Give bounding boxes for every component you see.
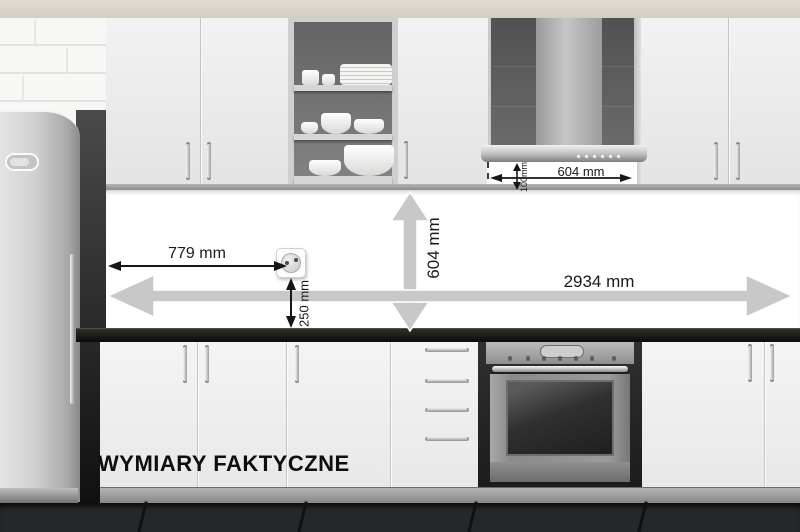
oven-lower-drawer (490, 462, 630, 482)
bowl (309, 160, 341, 176)
total-width-label: 2934 mm (544, 272, 654, 292)
open-shelf-cabinet (288, 18, 398, 184)
large-bowl (344, 145, 394, 176)
cabinet-handle (207, 144, 211, 178)
upper-cabinets (106, 18, 800, 190)
oven-door-handle (492, 366, 628, 372)
floor-grout-line (635, 501, 648, 532)
plate-stack (340, 64, 392, 85)
fridge-display (5, 153, 39, 171)
drawer-handle (427, 408, 467, 412)
floor (0, 503, 800, 532)
floor-grout-line (135, 501, 148, 532)
splashback-height-label: 604 mm (424, 213, 444, 283)
cabinet-handle (748, 346, 752, 380)
kitchen-dimensions-diagram: 779 mm 250 mm 604 mm 2934 mm 604 mm 100m… (0, 0, 800, 532)
oven (486, 342, 634, 482)
shelf (294, 134, 392, 140)
fridge-kick-plate (0, 488, 78, 504)
cabinet-jamb (488, 18, 491, 166)
hood-chimney (536, 18, 602, 150)
oven-knob (542, 356, 546, 361)
bowl (354, 119, 384, 134)
plinth (100, 487, 800, 503)
cabinet-door-seam (390, 342, 391, 487)
outlet-socket (281, 253, 301, 273)
shelf (294, 176, 392, 184)
socket-offset-label: 779 mm (152, 245, 242, 263)
oven-door (490, 374, 630, 462)
bowl (321, 113, 351, 134)
range-hood (481, 145, 647, 162)
hood-light (609, 155, 612, 158)
cabinet-handle (205, 347, 209, 381)
cup (322, 74, 335, 85)
outlet-pin (285, 261, 289, 265)
refrigerator (0, 110, 80, 502)
hood-width-label: 604 mm (541, 164, 621, 179)
countertop (76, 328, 800, 342)
cup (302, 70, 319, 85)
tile-joint (34, 20, 36, 46)
cabinet-door-seam (728, 18, 729, 184)
floor-grout-line (465, 501, 478, 532)
socket-height-label: 250 mm (297, 274, 312, 334)
tile-joint (22, 76, 24, 102)
cabinet-handle (183, 347, 187, 381)
bowl (301, 122, 318, 134)
hood-clearance-label: 100mm (519, 158, 529, 196)
drawer-handle (427, 379, 467, 383)
floor-grout-line (295, 501, 308, 532)
oven-knob (612, 356, 616, 361)
tile-joint (66, 48, 68, 74)
fridge-handle (70, 254, 75, 404)
cabinet-handle (736, 144, 740, 178)
diagram-caption: WYMIARY FAKTYCZNE (98, 451, 350, 477)
oven-knob (526, 356, 530, 361)
hood-light (577, 155, 580, 158)
oven-knob (508, 356, 512, 361)
cabinet-door-seam (764, 342, 765, 487)
oven-knob (590, 356, 594, 361)
oven-glass (506, 380, 614, 456)
cabinet-door-seam (200, 18, 201, 184)
cabinet-handle (186, 144, 190, 178)
ceiling (0, 0, 800, 18)
drawer-handle (427, 348, 467, 352)
hood-light (601, 155, 604, 158)
hood-light (593, 155, 596, 158)
outlet-pin (294, 258, 298, 262)
drawer-handle (427, 437, 467, 441)
cabinet-handle (404, 143, 408, 177)
cabinet-handle (714, 144, 718, 178)
hood-light (617, 155, 620, 158)
hood-light (585, 155, 588, 158)
oven-knob (558, 356, 562, 361)
oven-knob (574, 356, 578, 361)
cabinet-handle (770, 346, 774, 380)
shelf (294, 85, 392, 91)
cabinet-handle (295, 347, 299, 381)
